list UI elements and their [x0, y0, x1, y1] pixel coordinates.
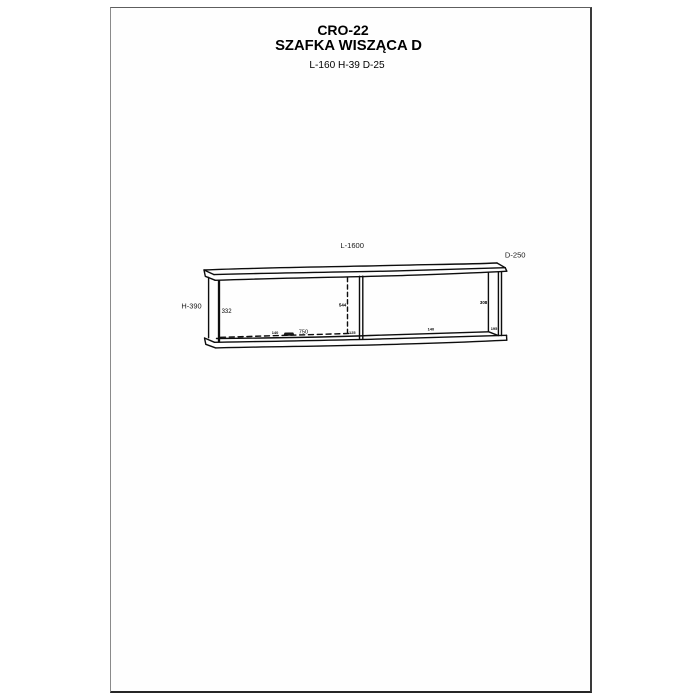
svg-text:750: 750: [299, 330, 308, 336]
svg-text:195: 195: [491, 326, 498, 331]
svg-text:140: 140: [272, 330, 279, 335]
svg-text:125: 125: [349, 330, 356, 335]
svg-text:332: 332: [222, 309, 233, 315]
svg-text:544: 544: [339, 302, 347, 307]
svg-text:308: 308: [480, 300, 488, 305]
svg-text:D-250: D-250: [505, 250, 526, 259]
svg-text:L-1600: L-1600: [340, 241, 364, 250]
svg-text:H-390: H-390: [181, 302, 201, 311]
svg-text:140: 140: [428, 326, 435, 331]
